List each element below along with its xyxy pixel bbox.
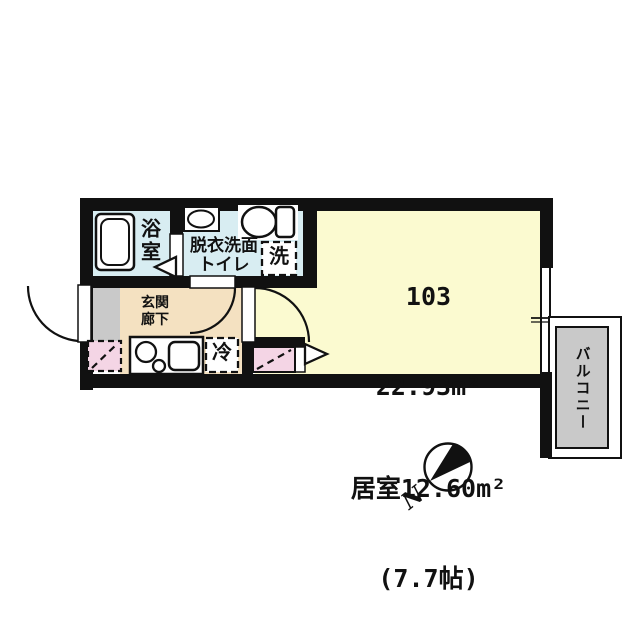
stove-burner-small-icon — [153, 360, 165, 372]
floor-plan-canvas: 浴室 脱衣洗面トイレ 洗 玄関廊下 冷 103 22.93m² 居室12.60m… — [0, 0, 640, 640]
toilet-tank — [276, 207, 294, 237]
room-size-jo: (7.7帖) — [317, 564, 540, 594]
washroom-label: 脱衣洗面トイレ — [183, 237, 265, 275]
balcony-label: バルコニー — [556, 329, 608, 447]
wall-above-storage — [250, 337, 305, 347]
washroom-label-line1: 脱衣洗面 — [190, 236, 258, 256]
fridge-label: 冷 — [206, 341, 238, 364]
total-area: 22.93m² — [317, 372, 540, 402]
wall-top — [80, 198, 553, 211]
entrance-door-jamb — [78, 285, 91, 342]
hallway-label-line2: 廊下 — [141, 312, 169, 328]
toilet-bowl — [242, 207, 276, 237]
kitchen-sink — [169, 342, 199, 370]
storage-jamb — [295, 347, 305, 372]
vanity-sink-bowl — [188, 211, 214, 228]
hallway-label: 玄関廊下 — [141, 295, 177, 329]
entry-floor — [91, 287, 120, 342]
living-room-door-jamb — [242, 287, 255, 342]
living-room-text-block: 103 22.93m² 居室12.60m² (7.7帖) — [317, 222, 540, 640]
bathroom-label: 浴室 — [136, 213, 162, 269]
stove-burner-large-icon — [136, 342, 156, 362]
washroom-label-line2: トイレ — [199, 255, 250, 275]
hallway-label-line1: 玄関 — [141, 295, 169, 311]
wall-right-upper — [540, 211, 553, 268]
wall-balcony-west — [540, 372, 552, 458]
wall-washroom-east — [303, 211, 317, 276]
unit-number: 103 — [317, 282, 540, 312]
bathtub-inner — [101, 219, 129, 265]
washroom-door-opening — [190, 276, 235, 288]
entrance-door-arc — [28, 286, 78, 341]
washer-label: 洗 — [262, 245, 296, 268]
wall-bath-washroom — [170, 211, 183, 234]
